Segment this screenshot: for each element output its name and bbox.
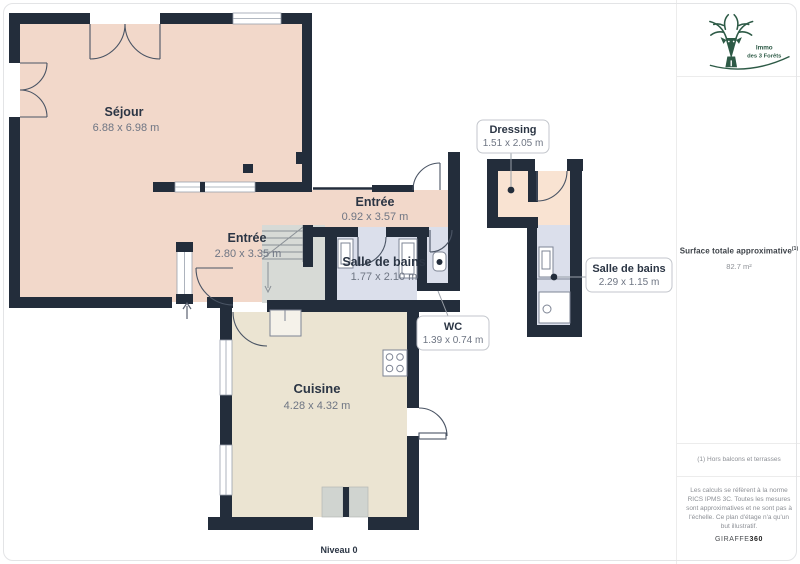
room-fills xyxy=(20,24,570,517)
window-cuisine-2 xyxy=(220,445,232,495)
toilet-icon xyxy=(433,252,446,271)
bathroom2-label: Salle de bains xyxy=(592,263,665,275)
info-sidebar: Immo des 3 Forêts Surface totale approxi… xyxy=(676,0,800,564)
bathroom2-dims: 2.29 x 1.15 m xyxy=(599,277,660,288)
dressing-label: Dressing xyxy=(489,124,536,136)
window-sejour-inner xyxy=(175,182,255,192)
cuisine-dims: 4.28 x 4.32 m xyxy=(284,400,351,412)
dressing-entry-floor xyxy=(538,171,570,225)
cuisine-floor xyxy=(232,312,407,517)
wc-dims: 1.39 x 0.74 m xyxy=(423,335,484,346)
sidebar-divider-3 xyxy=(677,476,800,477)
sejour-floor-left xyxy=(20,24,153,300)
window-sejour-top xyxy=(233,13,281,24)
entry-step-2 xyxy=(349,487,368,517)
kitchen-sink xyxy=(270,310,301,336)
door-front-entrance xyxy=(413,163,440,190)
sejour-label: Séjour xyxy=(105,105,144,119)
surface-total-value: 82.7 m² xyxy=(677,262,800,271)
entree-main-label: Entrée xyxy=(228,231,267,245)
surface-total-block: Surface totale approximative(1) 82.7 m² xyxy=(677,246,800,271)
entrance-arrow-icon xyxy=(183,303,191,319)
door-cuisine-exterior xyxy=(419,408,447,439)
entree-main-dims: 2.80 x 3.35 m xyxy=(215,248,282,260)
bathtub-bathroom2 xyxy=(539,292,570,323)
bathroom1-label: Salle de bains xyxy=(342,255,425,269)
wc-label: WC xyxy=(444,321,462,333)
disclaimer-text: Les calculs se réfèrent à la norme RICS … xyxy=(685,486,793,531)
stove-icon xyxy=(383,350,407,376)
bathroom2-point xyxy=(551,274,558,281)
sidebar-divider-2 xyxy=(677,443,800,444)
dressing-label-box: Dressing 1.51 x 2.05 m xyxy=(477,120,549,153)
bathroom2-label-box: Salle de bains 2.29 x 1.15 m xyxy=(586,258,672,292)
deer-icon xyxy=(710,15,753,38)
cuisine-label: Cuisine xyxy=(294,381,341,396)
brand-name-line1: Immo xyxy=(756,45,773,52)
giraffe360-brand: GIRAFFE360 xyxy=(677,536,800,543)
sejour-dims: 6.88 x 6.98 m xyxy=(93,122,160,134)
surface-superscript: (1) xyxy=(792,246,798,252)
window-cuisine-1 xyxy=(220,340,232,395)
bathroom1-dims: 1.77 x 2.10 m xyxy=(351,271,418,283)
floorplan-page: Dressing 1.51 x 2.05 m Salle de bains 2.… xyxy=(0,0,800,564)
brand-name-line2: des 3 Forêts xyxy=(747,53,781,59)
level-label: Niveau 0 xyxy=(320,545,357,555)
floorplan-drawing: Dressing 1.51 x 2.05 m Salle de bains 2.… xyxy=(0,0,676,564)
deer-eye-left xyxy=(728,41,730,43)
agency-logo: Immo des 3 Forêts xyxy=(679,6,799,74)
footnote: (1) Hors balcons et terrasses xyxy=(677,456,800,463)
wc-label-box: WC 1.39 x 0.74 m xyxy=(417,316,489,350)
column xyxy=(243,164,253,173)
entree-corridor-label: Entrée xyxy=(356,195,395,209)
entry-step-1 xyxy=(322,487,343,517)
sidebar-divider-1 xyxy=(677,76,800,77)
entree-corridor-dims: 0.92 x 3.57 m xyxy=(342,211,409,223)
deer-eye-right xyxy=(733,41,735,43)
dressing-point xyxy=(508,187,515,194)
dressing-dims: 1.51 x 2.05 m xyxy=(483,138,544,149)
surface-total-title: Surface totale approximative(1) xyxy=(677,246,800,256)
window-partition xyxy=(176,242,193,304)
